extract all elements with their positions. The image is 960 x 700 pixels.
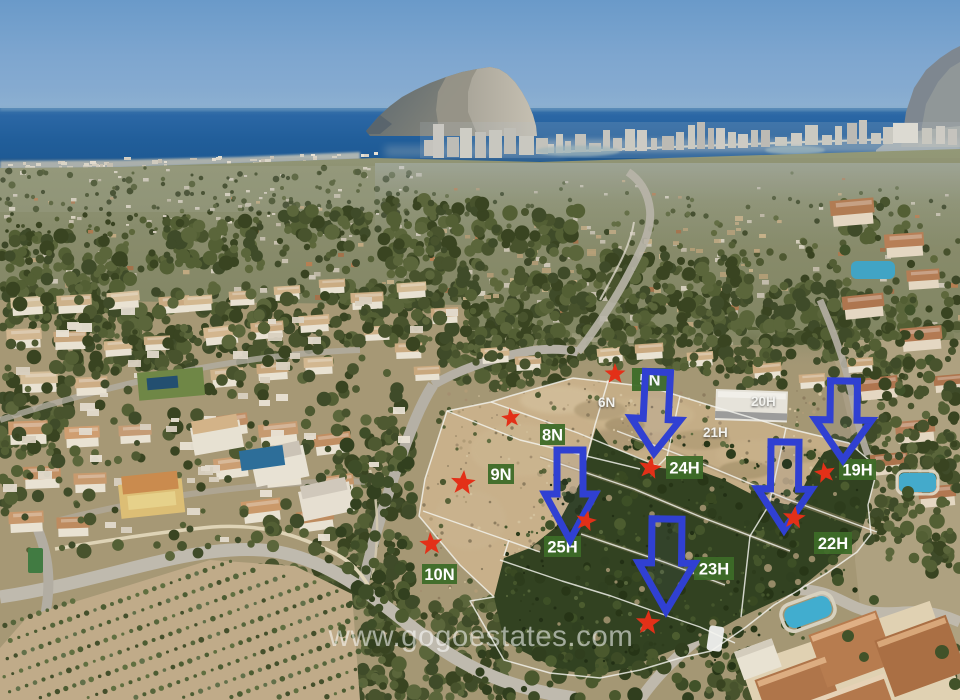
svg-text:8N: 8N [542,426,563,444]
svg-text:22H: 22H [818,535,848,553]
svg-text:24H: 24H [669,459,699,477]
svg-text:20H: 20H [751,394,776,409]
svg-text:10N: 10N [424,566,454,584]
svg-text:www.gogoestates.com: www.gogoestates.com [328,620,634,653]
svg-text:21H: 21H [703,425,728,440]
svg-text:23H: 23H [699,560,729,578]
svg-text:9N: 9N [490,466,511,484]
svg-text:6N: 6N [598,395,615,410]
svg-text:19H: 19H [842,461,872,479]
